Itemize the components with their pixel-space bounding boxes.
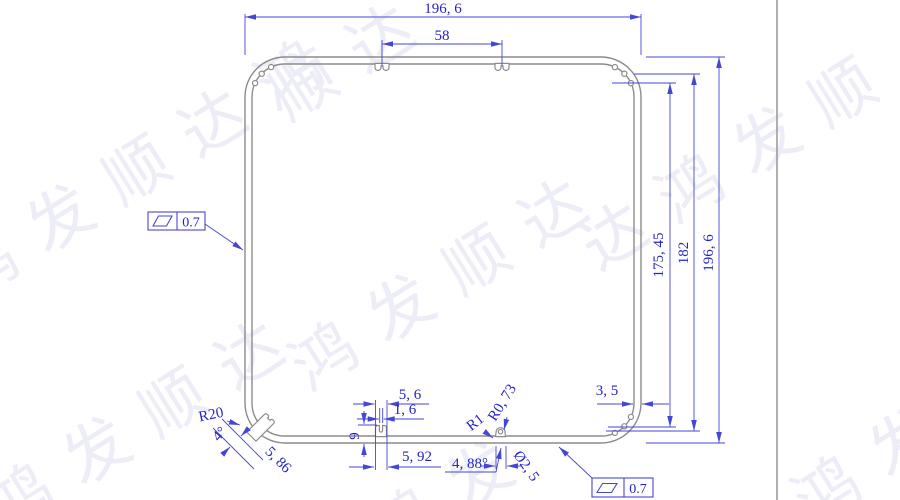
parallelism-symbol-icon xyxy=(597,484,617,493)
flatness-value-left: 0.7 xyxy=(182,216,200,231)
dim-inner-height-175-text: 175, 45 xyxy=(651,233,667,278)
extrusion-profile xyxy=(245,57,641,443)
dim-height-182-text: 182 xyxy=(676,242,692,265)
corner-serrations-bottom-right xyxy=(612,414,633,435)
dim-wall-thickness-text: 3, 5 xyxy=(596,383,619,399)
dim-notch-width-text: 5, 6 xyxy=(399,387,422,403)
profile-inner-outline xyxy=(252,64,634,436)
dim-notch-slot-text: 1, 6 xyxy=(394,402,417,418)
cad-drawing-canvas: 鸿发顺达鸿 达鸿发顺达 发顺达鸿发 鸿发顺达 达鸿发顺 顺达鸿发 顺达 xyxy=(0,0,900,500)
label-r073-text: R0, 73 xyxy=(485,382,520,424)
dim-inner-height-175: 175, 45 xyxy=(608,83,676,427)
dim-wall-thickness: 3, 5 xyxy=(596,383,669,404)
dimensions: 196, 6 58 175, 45 182 xyxy=(197,1,725,485)
dim-overall-width-top-text: 196, 6 xyxy=(424,1,462,17)
dim-top-slot-58: 58 xyxy=(382,28,502,66)
dim-angle-488-text: 4, 88° xyxy=(452,456,488,472)
dim-notch-height-text: 9 xyxy=(347,432,363,440)
flatness-frame-left: 0.7 xyxy=(148,212,243,250)
dim-overall-height-right-text: 196, 6 xyxy=(701,234,717,272)
profile-outer-outline xyxy=(245,57,641,443)
corner-serrations-top-right xyxy=(612,65,633,86)
corner-screw-tab xyxy=(247,413,275,441)
corner-serrations-top-left xyxy=(253,65,274,86)
flatness-frame-bottom: 0.7 xyxy=(559,447,653,497)
dim-notch-base-text: 5, 92 xyxy=(402,449,432,465)
label-r20-text: R20 xyxy=(197,405,225,426)
bottom-screw-channel xyxy=(376,426,387,437)
technical-drawing: 196, 6 58 175, 45 182 xyxy=(0,0,900,500)
dim-angle-488: 4, 88° xyxy=(445,448,501,472)
dim-top-slot-58-text: 58 xyxy=(435,28,450,44)
dim-corner-group: R20 4° 5, 86 xyxy=(197,405,294,477)
dim-tab-586-text: 5, 86 xyxy=(262,444,295,477)
parallelism-symbol-icon xyxy=(153,216,172,226)
label-r1-text: R1 xyxy=(464,411,488,434)
dim-bottom-notch-group: 5, 6 1, 6 9 5, 92 xyxy=(347,387,441,470)
boss-hole xyxy=(498,429,502,433)
label-angle4-text: 4° xyxy=(210,424,231,445)
flatness-value-bottom: 0.7 xyxy=(629,482,647,497)
